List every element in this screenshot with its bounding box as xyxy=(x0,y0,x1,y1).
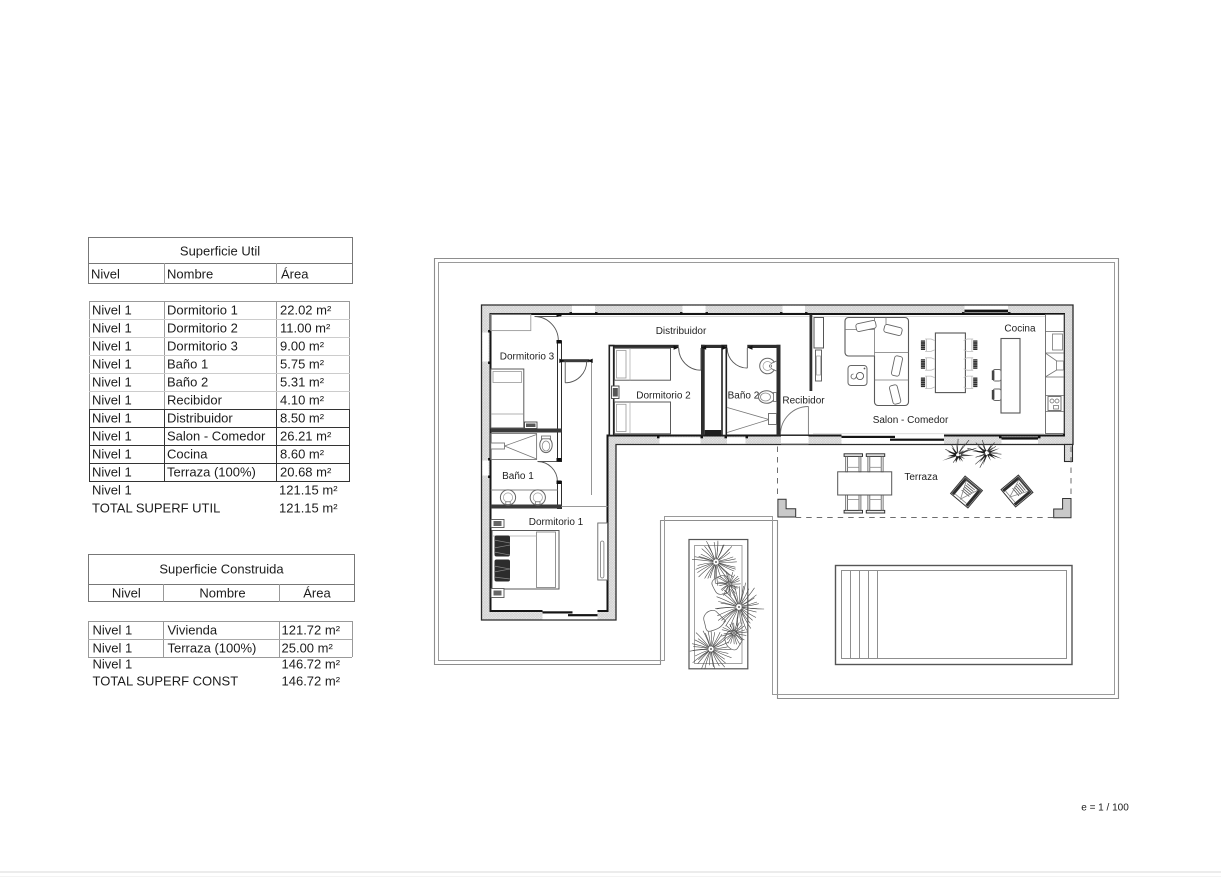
svg-text:Dormitorio 2: Dormitorio 2 xyxy=(636,391,691,402)
svg-text:Recibidor: Recibidor xyxy=(782,396,825,407)
svg-text:Baño 2: Baño 2 xyxy=(728,391,760,402)
svg-text:Distribuidor: Distribuidor xyxy=(656,326,707,337)
svg-text:Dormitorio 1: Dormitorio 1 xyxy=(529,517,584,528)
svg-text:Terraza: Terraza xyxy=(904,472,938,483)
svg-text:Baño 1: Baño 1 xyxy=(502,471,534,482)
svg-text:Dormitorio 3: Dormitorio 3 xyxy=(500,352,555,363)
svg-text:Salon - Comedor: Salon - Comedor xyxy=(873,415,949,426)
svg-text:Cocina: Cocina xyxy=(1004,324,1036,335)
